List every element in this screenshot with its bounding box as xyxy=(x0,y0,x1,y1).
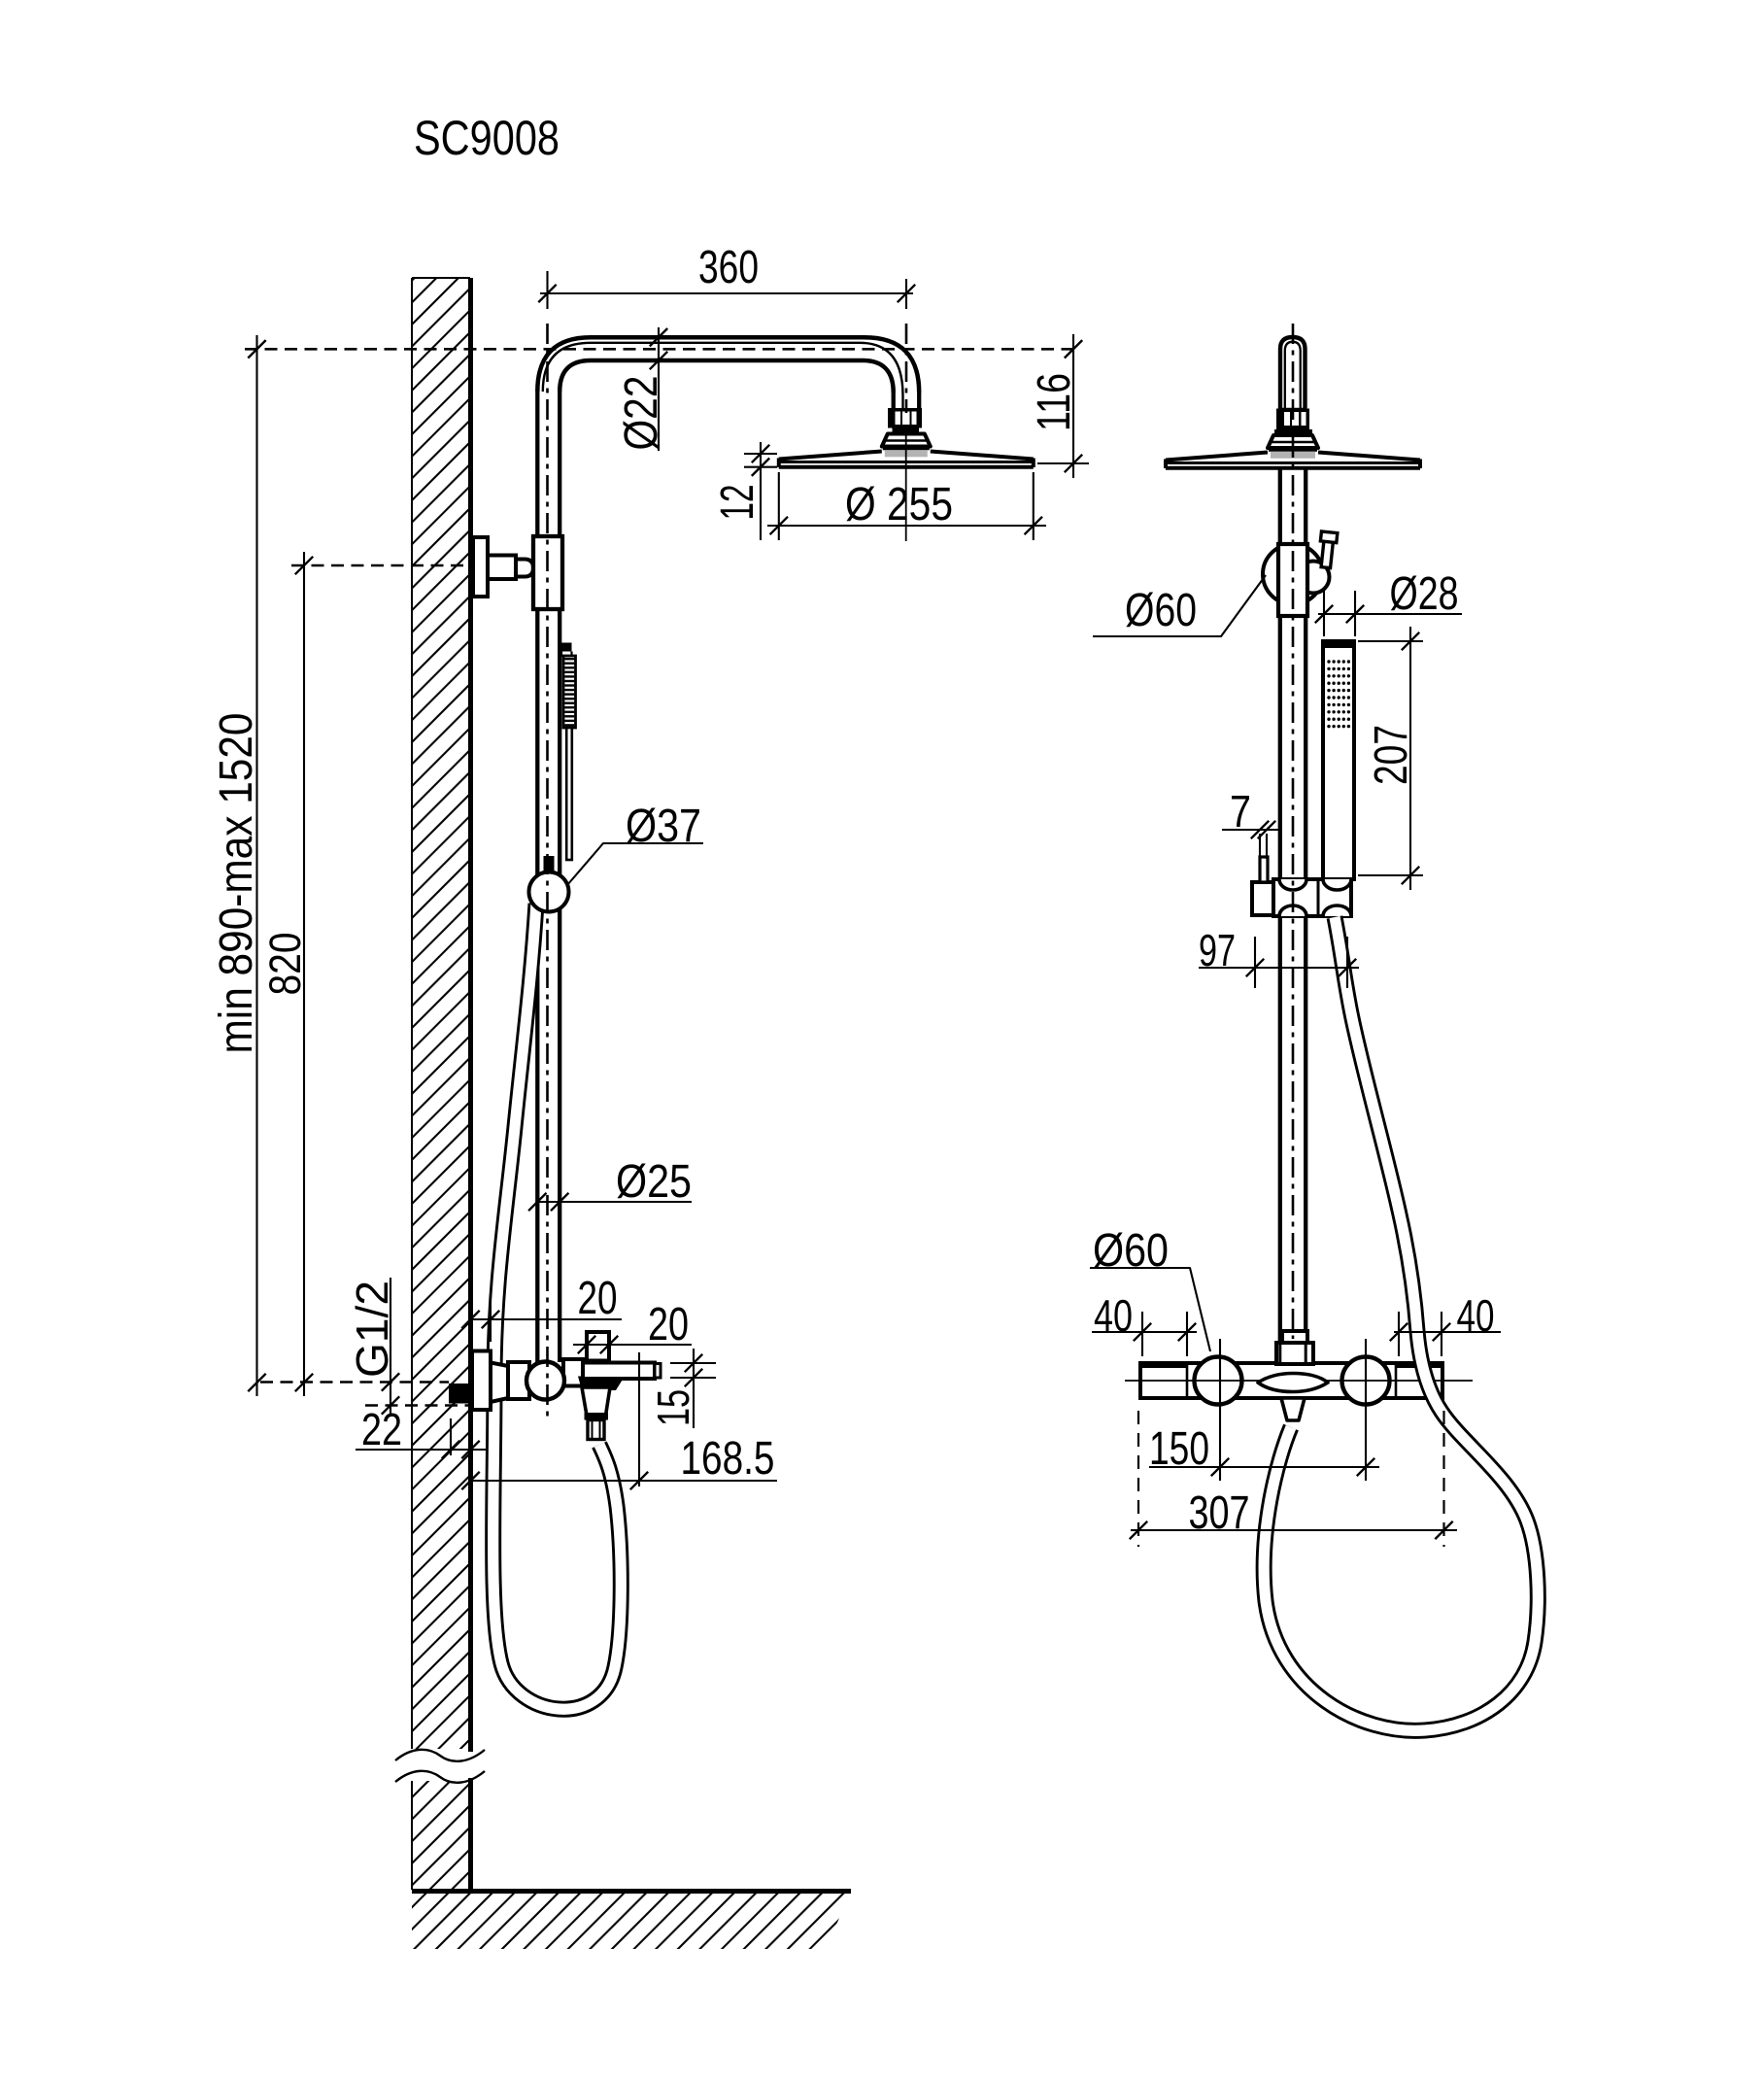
svg-text:820: 820 xyxy=(260,933,310,996)
svg-text:SC9008: SC9008 xyxy=(414,111,560,165)
svg-text:97: 97 xyxy=(1199,925,1236,975)
svg-text:Ø25: Ø25 xyxy=(616,1156,692,1208)
svg-text:G1/2: G1/2 xyxy=(347,1281,397,1378)
svg-text:12: 12 xyxy=(712,485,763,521)
svg-text:Ø60: Ø60 xyxy=(1093,1225,1169,1277)
svg-text:15: 15 xyxy=(648,1389,698,1426)
svg-text:360: 360 xyxy=(698,242,759,293)
svg-text:7: 7 xyxy=(1230,786,1251,837)
svg-text:40: 40 xyxy=(1457,1290,1495,1341)
svg-text:20: 20 xyxy=(578,1273,618,1324)
svg-text:207: 207 xyxy=(1366,725,1417,785)
svg-text:Ø 255: Ø 255 xyxy=(845,479,953,530)
svg-text:22: 22 xyxy=(361,1404,402,1454)
svg-text:Ø60: Ø60 xyxy=(1125,585,1197,636)
svg-text:150: 150 xyxy=(1149,1423,1209,1475)
svg-text:Ø37: Ø37 xyxy=(626,801,701,852)
svg-text:Ø28: Ø28 xyxy=(1390,568,1459,620)
svg-text:168.5: 168.5 xyxy=(681,1433,775,1485)
svg-text:Ø22: Ø22 xyxy=(616,376,667,451)
svg-text:40: 40 xyxy=(1094,1290,1133,1341)
svg-text:20: 20 xyxy=(648,1299,689,1350)
svg-text:307: 307 xyxy=(1189,1487,1250,1539)
svg-text:min 890-max 1520: min 890-max 1520 xyxy=(211,713,262,1054)
svg-text:116: 116 xyxy=(1029,373,1080,431)
